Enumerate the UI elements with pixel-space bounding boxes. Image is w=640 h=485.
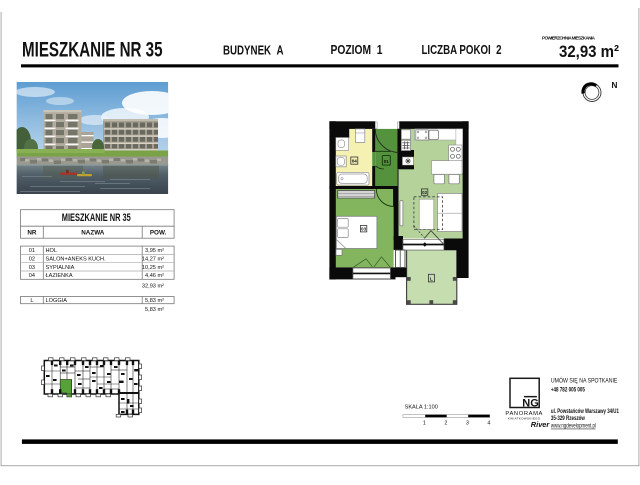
- svg-text:River: River: [531, 420, 551, 429]
- svg-text:04: 04: [352, 159, 358, 164]
- svg-text:32,93 m²: 32,93 m²: [142, 283, 164, 289]
- svg-text:1: 1: [423, 421, 426, 427]
- svg-text:5,83 m²: 5,83 m²: [145, 298, 164, 304]
- svg-text:ul. Powstańców Warszawy 34/U1: ul. Powstańców Warszawy 34/U1: [551, 409, 619, 415]
- svg-text:03: 03: [361, 227, 366, 232]
- svg-text:L: L: [430, 276, 433, 281]
- svg-text:01: 01: [384, 159, 390, 164]
- svg-text:02: 02: [29, 257, 35, 263]
- svg-text:BUDYNEK A: BUDYNEK A: [223, 44, 284, 58]
- svg-text:MIESZKANIE NR 35: MIESZKANIE NR 35: [22, 38, 163, 62]
- svg-text:4: 4: [487, 421, 490, 427]
- svg-text:35-329 Rzeszów: 35-329 Rzeszów: [551, 416, 585, 422]
- svg-text:4,46 m²: 4,46 m²: [145, 273, 164, 279]
- svg-text:5,83 m²: 5,83 m²: [145, 307, 164, 313]
- svg-text:HOL: HOL: [46, 248, 58, 254]
- svg-text:+48 782 005 005: +48 782 005 005: [551, 387, 585, 393]
- svg-text:SYPIALNIA: SYPIALNIA: [46, 265, 75, 271]
- svg-text:SKALA 1:100: SKALA 1:100: [405, 405, 438, 411]
- svg-text:LICZBA POKOI 2: LICZBA POKOI 2: [422, 43, 502, 57]
- svg-text:01: 01: [29, 248, 35, 254]
- svg-text:NAZWA: NAZWA: [81, 230, 105, 237]
- svg-text:10,25 m²: 10,25 m²: [142, 265, 164, 271]
- svg-text:NG: NG: [522, 397, 539, 409]
- svg-text:SALON+ANEKS KUCH.: SALON+ANEKS KUCH.: [46, 257, 107, 263]
- svg-text:3: 3: [466, 421, 469, 427]
- svg-text:02: 02: [422, 190, 427, 195]
- svg-text:NR: NR: [27, 230, 37, 237]
- svg-text:UMÓW SIĘ NA SPOTKANIE: UMÓW SIĘ NA SPOTKANIE: [551, 376, 618, 385]
- svg-text:POWIERZCHNIA MIESZKANIA: POWIERZCHNIA MIESZKANIA: [542, 36, 596, 41]
- svg-text:MIESZKANIE NR 35: MIESZKANIE NR 35: [62, 212, 131, 224]
- svg-text:03: 03: [29, 265, 35, 271]
- svg-text:L: L: [30, 298, 33, 304]
- svg-text:04: 04: [29, 273, 35, 279]
- svg-text:2: 2: [444, 421, 447, 427]
- svg-text:14,27 m²: 14,27 m²: [142, 257, 164, 263]
- svg-text:POW.: POW.: [150, 230, 167, 237]
- svg-text:N: N: [612, 81, 618, 90]
- svg-text:LOGGIA: LOGGIA: [46, 298, 68, 304]
- svg-text:32,93 m²: 32,93 m²: [559, 42, 619, 61]
- svg-text:ŁAZIENKA: ŁAZIENKA: [46, 273, 73, 279]
- svg-text:POZIOM 1: POZIOM 1: [331, 43, 383, 57]
- svg-text:3,95 m²: 3,95 m²: [145, 248, 164, 254]
